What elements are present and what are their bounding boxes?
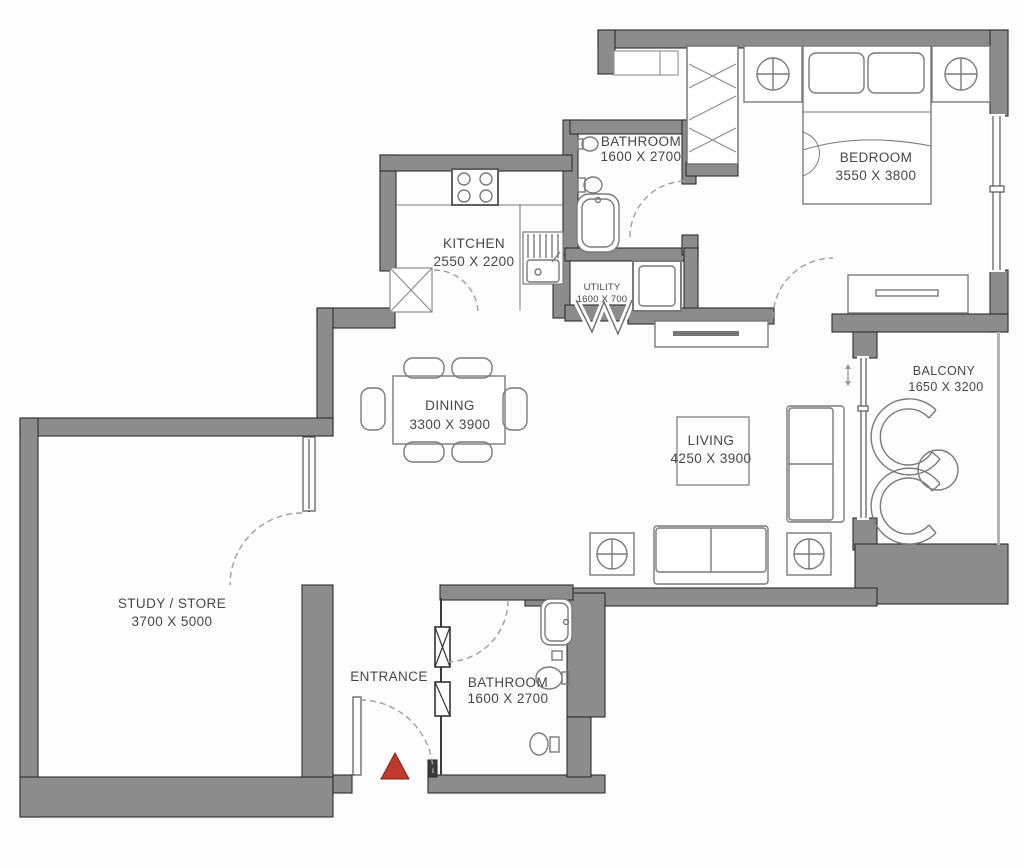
sofa-icon [654, 526, 768, 584]
dining-chair-icon [404, 358, 444, 378]
room-bathroom-bottom: BATHROOM 1600 X 2700 [468, 675, 549, 706]
room-utility: UTILITY 1600 X 700 [577, 282, 628, 305]
dining-chair-icon [503, 388, 527, 430]
dining-chair-icon [404, 442, 444, 462]
wall-segment [598, 30, 615, 74]
tv-console-icon [655, 321, 768, 347]
room-dims: 3300 X 3900 [410, 417, 491, 432]
toilet-icon [530, 733, 559, 755]
bathtub-icon [541, 599, 572, 645]
kitchen-entry-arc [434, 270, 478, 314]
room-label: LIVING [688, 433, 735, 448]
balcony-right-edge [997, 332, 1000, 545]
soap-shelf-icon [552, 651, 562, 660]
room-label: STUDY / STORE [118, 596, 226, 611]
wall-segment [317, 308, 333, 436]
room-bathroom-top: BATHROOM 1600 X 2700 [601, 134, 682, 164]
dining-chair-icon [452, 358, 492, 378]
room-label: DINING [425, 398, 475, 413]
study-door-arc [230, 513, 302, 585]
dresser-icon [848, 275, 968, 313]
wall-segment [832, 314, 1008, 332]
room-label: BATHROOM [468, 675, 548, 690]
wall-segment [570, 120, 690, 134]
balcony-chair-icon [871, 399, 940, 475]
door-direction-arrow-icon [845, 364, 851, 386]
side-table-lamp-icon [787, 533, 831, 575]
room-dims: 3550 X 3800 [836, 168, 917, 183]
bedroom-window [989, 114, 1005, 272]
wall-segment [853, 332, 877, 358]
balcony-sliding-door [857, 356, 869, 520]
side-table-lamp-icon [590, 533, 634, 575]
room-label: BEDROOM [840, 150, 913, 165]
washbasin-icon [578, 137, 598, 151]
wall-segment [440, 585, 573, 600]
bathroom-top-door-arc [630, 181, 686, 237]
entrance-marker-icon [381, 753, 409, 779]
sofa-icon [787, 406, 844, 522]
wall-segment [855, 544, 1008, 604]
bedroom-door-arc [773, 258, 833, 318]
wall-segment [990, 30, 1008, 116]
room-label: UTILITY [584, 282, 621, 293]
floorplan-drawing: BATHROOM 1600 X 2700 BEDROOM 3550 X 3800… [0, 0, 1024, 868]
wall-segment [428, 775, 605, 793]
dining-chair-icon [452, 442, 492, 462]
room-label: BATHROOM [601, 134, 681, 149]
room-dims: 2550 X 2200 [434, 254, 515, 269]
floorplan-canvas: BATHROOM 1600 X 2700 BEDROOM 3550 X 3800… [0, 0, 1024, 868]
room-kitchen: KITCHEN 2550 X 2200 [434, 236, 515, 269]
room-living: LIVING 4250 X 3900 [671, 433, 752, 466]
room-dims: 4250 X 3900 [671, 451, 752, 466]
nightstand-lamp-icon [744, 46, 802, 102]
room-label: ENTRANCE [350, 669, 427, 684]
dining-chair-icon [361, 388, 385, 430]
fridge-shaft-icon [390, 268, 432, 312]
door-jamb-icon [435, 627, 450, 716]
wall-segment [563, 120, 578, 258]
wall-segment [567, 717, 591, 777]
stove-icon [452, 169, 498, 205]
room-dims: 3700 X 5000 [132, 614, 213, 629]
balcony-chair-icon [871, 468, 940, 544]
balcony-table-icon [918, 450, 958, 490]
wall-segment [20, 418, 333, 436]
room-study-store: STUDY / STORE 3700 X 5000 [118, 596, 226, 629]
wall-segment [20, 777, 333, 817]
service-shaft-icon [614, 51, 678, 75]
wall-segment [20, 418, 38, 817]
room-label: BALCONY [913, 364, 976, 378]
study-sliding-panel [303, 437, 315, 511]
room-dims: 1600 X 2700 [468, 691, 549, 706]
wardrobe-icon [687, 46, 738, 164]
wall-segment [333, 775, 352, 793]
room-balcony: BALCONY 1650 X 3200 [908, 364, 983, 394]
bathtub-icon [577, 194, 619, 252]
toilet-icon [578, 177, 602, 193]
kitchen-sink-icon [523, 232, 563, 284]
room-dims: 1600 X 2700 [601, 149, 682, 164]
bathroom-bottom-door-arc [446, 600, 508, 662]
room-dims: 1650 X 3200 [908, 380, 983, 394]
wall-segment [380, 155, 396, 271]
room-label: KITCHEN [443, 236, 505, 251]
washing-machine-icon [633, 261, 681, 311]
room-dims: 1600 X 700 [577, 294, 628, 305]
entrance-door-leaf [353, 697, 361, 775]
wall-segment [302, 585, 333, 777]
room-entrance: ENTRANCE [350, 669, 427, 684]
nightstand-lamp-icon [932, 46, 990, 102]
